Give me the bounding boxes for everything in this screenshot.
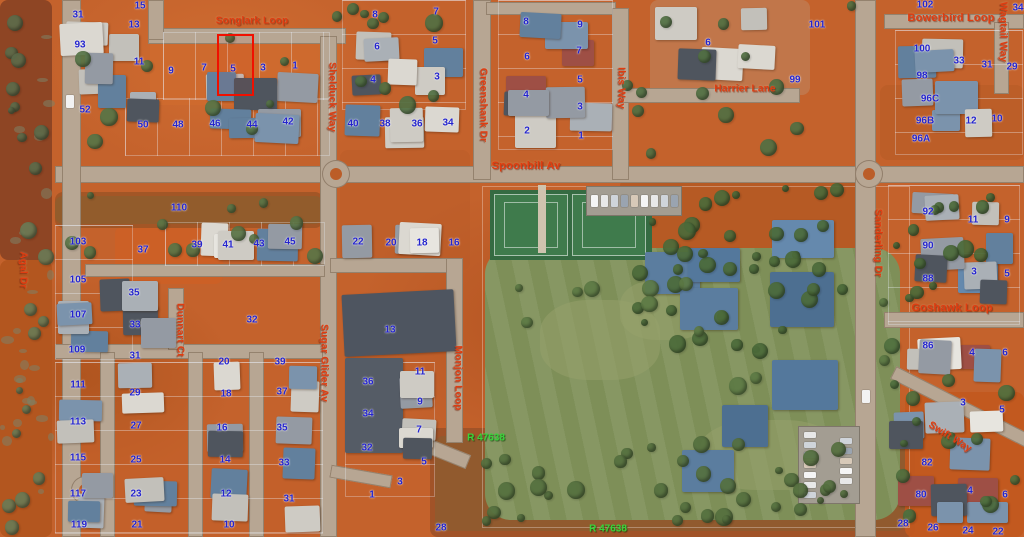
lot-label-102: 102 bbox=[917, 0, 934, 11]
lot-label-37: 37 bbox=[276, 387, 287, 398]
lot-label-1: 1 bbox=[292, 61, 298, 72]
lot-label-16: 16 bbox=[448, 238, 459, 249]
lot-label-1: 1 bbox=[578, 131, 584, 142]
lot-label-48: 48 bbox=[172, 120, 183, 131]
lot-label-20: 20 bbox=[385, 238, 396, 249]
lot-label-107: 107 bbox=[70, 310, 87, 321]
lot-label-34: 34 bbox=[362, 409, 373, 420]
lot-label-6: 6 bbox=[524, 52, 530, 63]
lot-label-14: 14 bbox=[219, 455, 230, 466]
lot-label-16: 16 bbox=[216, 423, 227, 434]
street-label-monjon-loop: Monjon Loop bbox=[453, 346, 464, 411]
lot-label-29: 29 bbox=[129, 388, 140, 399]
lot-label-92: 92 bbox=[922, 207, 933, 218]
lot-label-3: 3 bbox=[260, 63, 266, 74]
lot-label-25: 25 bbox=[130, 455, 141, 466]
selected-parcel-highlight[interactable] bbox=[217, 34, 254, 96]
lot-label-9: 9 bbox=[1004, 215, 1010, 226]
street-label-swift-way: Swift Way bbox=[926, 419, 973, 454]
lot-label-32: 32 bbox=[246, 315, 257, 326]
lot-label-113: 113 bbox=[70, 417, 86, 428]
lot-label-82: 82 bbox=[921, 458, 932, 469]
lot-label-99: 99 bbox=[789, 75, 800, 86]
lot-label-13: 13 bbox=[384, 325, 395, 336]
street-label-bowerbird-loop: Bowerbird Loop bbox=[907, 12, 994, 24]
lot-label-35: 35 bbox=[128, 288, 139, 299]
street-label-sugar-glider-av: Sugar Glider Av bbox=[319, 324, 330, 402]
street-label-harrier-lane: Harrier Lane bbox=[714, 84, 775, 95]
lot-label-96c: 96C bbox=[921, 94, 939, 105]
lot-label-6: 6 bbox=[1002, 490, 1008, 501]
lot-label-111: 111 bbox=[70, 380, 86, 391]
lot-label-4: 4 bbox=[967, 486, 973, 497]
lot-label-5: 5 bbox=[577, 75, 583, 86]
lot-label-4: 4 bbox=[523, 90, 529, 101]
lot-label-12: 12 bbox=[220, 489, 231, 500]
lot-label-3: 3 bbox=[971, 267, 977, 278]
lot-label-33: 33 bbox=[953, 56, 964, 67]
lot-label-86: 86 bbox=[922, 341, 933, 352]
lot-label-101: 101 bbox=[809, 20, 826, 31]
lot-label-93: 93 bbox=[74, 40, 85, 51]
lot-label-103: 103 bbox=[70, 237, 87, 248]
lot-label-22: 22 bbox=[352, 237, 363, 248]
street-label-wagtail-way: Wagtail Way bbox=[998, 2, 1009, 62]
lot-label-11: 11 bbox=[968, 215, 979, 226]
lot-label-45: 45 bbox=[284, 237, 295, 248]
street-label-ibis-way: Ibis Way bbox=[616, 67, 627, 109]
lot-label-7: 7 bbox=[201, 63, 207, 74]
street-label-spoonbill-av: Spoonbill Av bbox=[492, 160, 561, 172]
street-label-agal-dr: Agal Dr bbox=[18, 252, 29, 289]
lot-label-42: 42 bbox=[282, 117, 293, 128]
lot-label-21: 21 bbox=[131, 520, 142, 531]
lot-label-39: 39 bbox=[191, 240, 202, 251]
lot-label-26: 26 bbox=[927, 523, 938, 534]
lot-label-10: 10 bbox=[991, 114, 1002, 125]
lot-label-5: 5 bbox=[999, 405, 1005, 416]
reserve-label-r-47638: R 47638 bbox=[467, 433, 505, 444]
lot-label-7: 7 bbox=[576, 46, 582, 57]
lot-label-4: 4 bbox=[969, 348, 975, 359]
lot-label-28: 28 bbox=[897, 519, 908, 530]
street-label-shelduck-way: Shelduck Way bbox=[327, 62, 338, 132]
lot-label-9: 9 bbox=[168, 66, 174, 77]
lot-label-20: 20 bbox=[218, 357, 229, 368]
lot-label-110: 110 bbox=[171, 203, 187, 214]
lot-label-2: 2 bbox=[524, 126, 530, 137]
lot-label-15: 15 bbox=[134, 1, 145, 12]
lot-label-9: 9 bbox=[577, 20, 583, 31]
lot-label-9: 9 bbox=[417, 397, 423, 408]
lot-label-22: 22 bbox=[992, 527, 1003, 537]
lot-label-32: 32 bbox=[361, 443, 372, 454]
lot-label-7: 7 bbox=[416, 425, 422, 436]
street-label-greenshank-dr: Greenshank Dr bbox=[478, 68, 489, 142]
labels-layer: 3115139311975315250484644428765434038363… bbox=[0, 0, 1024, 537]
lot-label-88: 88 bbox=[922, 274, 933, 285]
lot-label-13: 13 bbox=[128, 20, 139, 31]
lot-label-28: 28 bbox=[435, 523, 446, 534]
lot-label-24: 24 bbox=[962, 526, 973, 537]
lot-label-41: 41 bbox=[222, 240, 233, 251]
lot-label-18: 18 bbox=[416, 238, 427, 249]
lot-label-33: 33 bbox=[129, 320, 140, 331]
lot-label-31: 31 bbox=[72, 10, 83, 21]
lot-label-98: 98 bbox=[916, 71, 927, 82]
reserve-label-r-47638: R 47638 bbox=[589, 524, 627, 535]
lot-label-36: 36 bbox=[411, 119, 422, 130]
lot-label-3: 3 bbox=[960, 398, 966, 409]
lot-label-3: 3 bbox=[434, 72, 440, 83]
street-label-sanderling-dr: Sanderling Dr bbox=[873, 209, 884, 277]
lot-label-12: 12 bbox=[965, 116, 976, 127]
lot-label-31: 31 bbox=[129, 351, 140, 362]
lot-label-34: 34 bbox=[1012, 3, 1023, 14]
street-label-dunnart-ct: Dunnart Ct bbox=[175, 303, 186, 357]
lot-label-29: 29 bbox=[1006, 62, 1017, 73]
lot-label-36: 36 bbox=[362, 377, 373, 388]
lot-label-37: 37 bbox=[137, 245, 148, 256]
lot-label-115: 115 bbox=[70, 453, 86, 464]
lot-label-31: 31 bbox=[283, 494, 294, 505]
lot-label-18: 18 bbox=[220, 389, 231, 400]
lot-label-46: 46 bbox=[209, 119, 220, 130]
lot-label-3: 3 bbox=[397, 477, 403, 488]
lot-label-5: 5 bbox=[1004, 269, 1010, 280]
lot-label-52: 52 bbox=[79, 105, 90, 116]
lot-label-8: 8 bbox=[523, 17, 529, 28]
lot-label-39: 39 bbox=[274, 357, 285, 368]
lot-label-34: 34 bbox=[442, 118, 453, 129]
lot-label-4: 4 bbox=[370, 75, 376, 86]
lot-label-38: 38 bbox=[379, 119, 390, 130]
lot-label-100: 100 bbox=[914, 44, 931, 55]
lot-label-35: 35 bbox=[276, 423, 287, 434]
lot-label-44: 44 bbox=[246, 120, 257, 131]
lot-label-3: 3 bbox=[577, 102, 583, 113]
lot-label-7: 7 bbox=[433, 7, 439, 18]
lot-label-8: 8 bbox=[372, 10, 378, 21]
aerial-map-view[interactable]: 3115139311975315250484644428765434038363… bbox=[0, 0, 1024, 537]
lot-label-5: 5 bbox=[432, 36, 438, 47]
lot-label-33: 33 bbox=[278, 458, 289, 469]
lot-label-5: 5 bbox=[421, 457, 427, 468]
lot-label-27: 27 bbox=[130, 421, 141, 432]
lot-label-90: 90 bbox=[922, 241, 933, 252]
lot-label-43: 43 bbox=[253, 239, 264, 250]
lot-label-6: 6 bbox=[374, 42, 380, 53]
street-label-songlark-loop: Songlark Loop bbox=[216, 16, 289, 27]
lot-label-105: 105 bbox=[70, 275, 87, 286]
lot-label-6: 6 bbox=[1002, 348, 1008, 359]
lot-label-50: 50 bbox=[137, 120, 148, 131]
lot-label-23: 23 bbox=[130, 489, 141, 500]
lot-label-80: 80 bbox=[915, 490, 926, 501]
lot-label-109: 109 bbox=[69, 345, 86, 356]
lot-label-96a: 96A bbox=[912, 134, 930, 145]
lot-label-11: 11 bbox=[134, 57, 145, 68]
lot-label-6: 6 bbox=[705, 38, 711, 49]
lot-label-117: 117 bbox=[70, 489, 86, 500]
lot-label-31: 31 bbox=[981, 60, 992, 71]
lot-label-11: 11 bbox=[415, 367, 426, 378]
lot-label-96b: 96B bbox=[916, 116, 934, 127]
lot-label-1: 1 bbox=[369, 490, 375, 501]
lot-label-10: 10 bbox=[223, 520, 234, 531]
lot-label-119: 119 bbox=[71, 520, 87, 531]
street-label-goshawk-loop: Goshawk Loop bbox=[911, 302, 992, 314]
lot-label-40: 40 bbox=[347, 119, 358, 130]
